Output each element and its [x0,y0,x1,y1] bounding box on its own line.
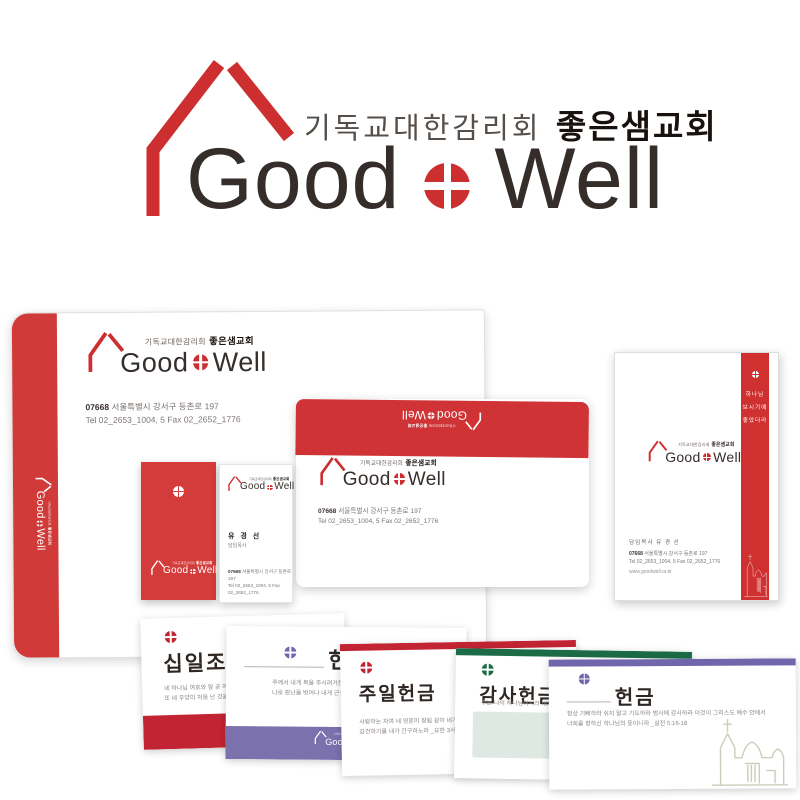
cross-circle-icon [193,355,209,371]
cross-circle-icon [752,371,759,378]
logo-korean-small: 기독교대한감리회좋은샘교회 [46,501,50,551]
goodwell-logo: 기독교대한감리회좋은샘교회 Good Well [227,478,294,492]
card-address: 07668 서울특별시 강서구 등촌로 197 Tel 02_2653_1004… [228,568,292,596]
title-rule [567,701,611,702]
goodwell-logo: 기독교대한감리회좋은샘교회 Good Well [150,562,217,576]
wordmark-good: Good [186,136,400,222]
cross-circle-icon [360,662,372,674]
envelope-title: 헌금 [615,681,656,710]
business-card-back: 기독교대한감리회좋은샘교회 Good Well 유 경 선 담임목사 07668… [219,464,293,603]
envelope-title: 십일조 [163,646,228,678]
cross-circle-icon [394,473,405,484]
website-url: www.goodwell.or.kr [629,569,672,575]
red-corner-block [143,713,231,749]
logo-korean-small: 기독교대한감리회좋은샘교회 [145,336,267,347]
main-logo: 기독교대한감리회 좋은샘교회 Good Well [140,52,680,222]
spine-vertical-logo: 기독교대한감리회좋은샘교회 Good Well [20,443,51,583]
house-roof-icon [227,475,243,492]
cross-circle-icon [267,485,273,491]
brand-identity-presentation: 기독교대한감리회 좋은샘교회 Good Well 기독교대한감리회좋은샘교회 [0,0,800,800]
card-title: 담임목사 [228,542,246,549]
wordmark: Good Well [186,136,664,222]
card-name: 유 경 선 [228,531,261,541]
cross-circle-icon [428,412,435,419]
cross-circle-icon [482,664,494,676]
goodwell-logo: 기독교대한감리회좋은샘교회 Good Well [20,476,51,550]
goodwell-logo-inverted: 기독교대한감리회좋은샘교회 Good Well [402,409,483,428]
letterhead-red-band: 하나님 보시기에 좋았더라 [741,353,769,600]
house-roof-icon [150,559,166,576]
envelope-address: 07668 서울특별시 강서구 등촌로 197 Tel 02_2653_1004… [318,507,438,527]
cross-circle-icon [579,673,590,684]
letterhead-address: 07668 서울특별시 강서구 등촌로 197 Tel 02_2653_1004… [629,551,720,567]
house-roof-icon [314,730,328,745]
accent-top-bar [549,658,797,666]
church-line-art [743,551,768,597]
church-line-art [706,714,792,786]
envelope-title: 주일헌금 [358,678,436,706]
offering-envelope-heongeum: 헌금 항상 기뻐하라 쉬지 말고 기도하라 범사에 감사하라 이것이 그리스도 … [549,658,797,789]
envelope-red-spine: 기독교대한감리회좋은샘교회 Good Well [12,313,59,657]
house-roof-icon [647,439,669,463]
cross-circle-icon [424,163,470,209]
dl-envelope-mockup: 기독교대한감리회좋은샘교회 Good Well 기독교대한감리회좋은샘교회 Go… [296,399,589,587]
house-roof-icon [318,455,347,487]
business-card-front: 기독교대한감리회좋은샘교회 Good Well [141,462,216,600]
cross-circle-icon [165,631,177,643]
envelope-address: 07668 서울특별시 강서구 등촌로 197 Tel 02_2653_1004… [85,400,240,427]
letterhead-mockup: 하나님 보시기에 좋았더라 기독교대한감리회좋은샘교회 [614,352,779,601]
goodwell-logo: 기독교대한감리회좋은샘교회 Good Well [647,443,741,464]
house-roof-icon [85,329,127,375]
cross-circle-icon [284,646,296,658]
house-roof-icon [464,411,483,432]
band-verse: 하나님 보시기에 좋았더라 [741,389,769,428]
cross-circle-icon [190,569,196,575]
wordmark-well: Well [494,136,664,222]
envelope-flap: 기독교대한감리회좋은샘교회 Good Well [295,399,589,458]
goodwell-logo: 기독교대한감리회좋은샘교회 Good Well [85,336,267,377]
accent-top-bar [454,648,692,659]
cross-circle-icon [37,520,43,526]
cross-circle-icon [703,453,711,461]
pastor-line: 담임목사 유 경 선 [629,538,680,546]
house-roof-icon [35,476,54,493]
title-rule [244,666,324,668]
cross-circle-icon [173,486,184,497]
goodwell-logo: 기독교대한감리회좋은샘교회 Good Well [318,461,446,489]
